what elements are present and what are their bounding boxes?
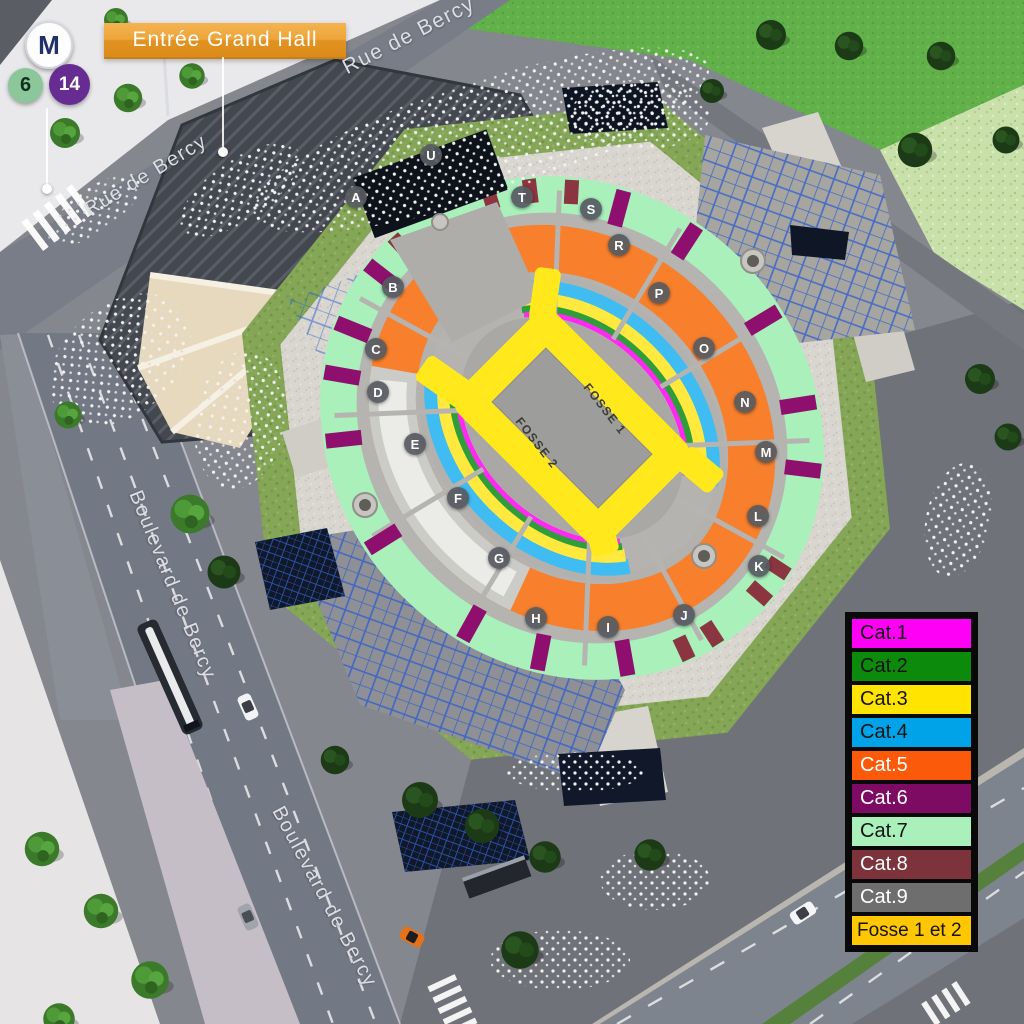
section-marker-a[interactable]: A bbox=[345, 186, 367, 208]
legend-item-cat3[interactable]: Cat.3 bbox=[852, 685, 971, 714]
legend-item-cat5[interactable]: Cat.5 bbox=[852, 751, 971, 780]
legend-item-cat2[interactable]: Cat.2 bbox=[852, 652, 971, 681]
legend-item-fosse[interactable]: Fosse 1 et 2 bbox=[852, 916, 971, 945]
metro-leader-line bbox=[46, 108, 48, 186]
metro-line-14-icon: 14 bbox=[49, 64, 90, 105]
section-marker-m[interactable]: M bbox=[755, 441, 777, 463]
legend-item-cat4[interactable]: Cat.4 bbox=[852, 718, 971, 747]
section-marker-u[interactable]: U bbox=[420, 144, 442, 166]
legend-item-cat9[interactable]: Cat.9 bbox=[852, 883, 971, 912]
section-marker-e[interactable]: E bbox=[404, 433, 426, 455]
section-marker-o[interactable]: O bbox=[693, 337, 715, 359]
metro-leader-dot bbox=[42, 184, 52, 194]
section-marker-k[interactable]: K bbox=[748, 555, 770, 577]
section-marker-i[interactable]: I bbox=[597, 616, 619, 638]
venue-seating-map: M 6 14 Entrée Grand Hall Rue de Bercy Ru… bbox=[0, 0, 1024, 1024]
section-marker-f[interactable]: F bbox=[447, 487, 469, 509]
entrance-banner: Entrée Grand Hall bbox=[104, 23, 346, 59]
section-marker-s[interactable]: S bbox=[580, 198, 602, 220]
banner-leader-line bbox=[222, 57, 224, 149]
section-marker-c[interactable]: C bbox=[365, 338, 387, 360]
section-marker-l[interactable]: L bbox=[747, 505, 769, 527]
legend-item-cat8[interactable]: Cat.8 bbox=[852, 850, 971, 879]
section-marker-t[interactable]: T bbox=[511, 186, 533, 208]
legend-item-cat7[interactable]: Cat.7 bbox=[852, 817, 971, 846]
section-marker-r[interactable]: R bbox=[608, 234, 630, 256]
legend-item-cat1[interactable]: Cat.1 bbox=[852, 619, 971, 648]
section-marker-n[interactable]: N bbox=[734, 391, 756, 413]
section-marker-d[interactable]: D bbox=[367, 381, 389, 403]
metro-logo-icon: M bbox=[25, 21, 73, 69]
banner-leader-dot bbox=[218, 147, 228, 157]
category-legend: Cat.1 Cat.2 Cat.3 Cat.4 Cat.5 Cat.6 Cat.… bbox=[845, 612, 978, 952]
section-marker-g[interactable]: G bbox=[488, 547, 510, 569]
section-marker-b[interactable]: B bbox=[382, 276, 404, 298]
metro-line-6-icon: 6 bbox=[8, 68, 43, 103]
section-marker-j[interactable]: J bbox=[673, 604, 695, 626]
section-marker-h[interactable]: H bbox=[525, 607, 547, 629]
legend-item-cat6[interactable]: Cat.6 bbox=[852, 784, 971, 813]
section-marker-p[interactable]: P bbox=[648, 282, 670, 304]
